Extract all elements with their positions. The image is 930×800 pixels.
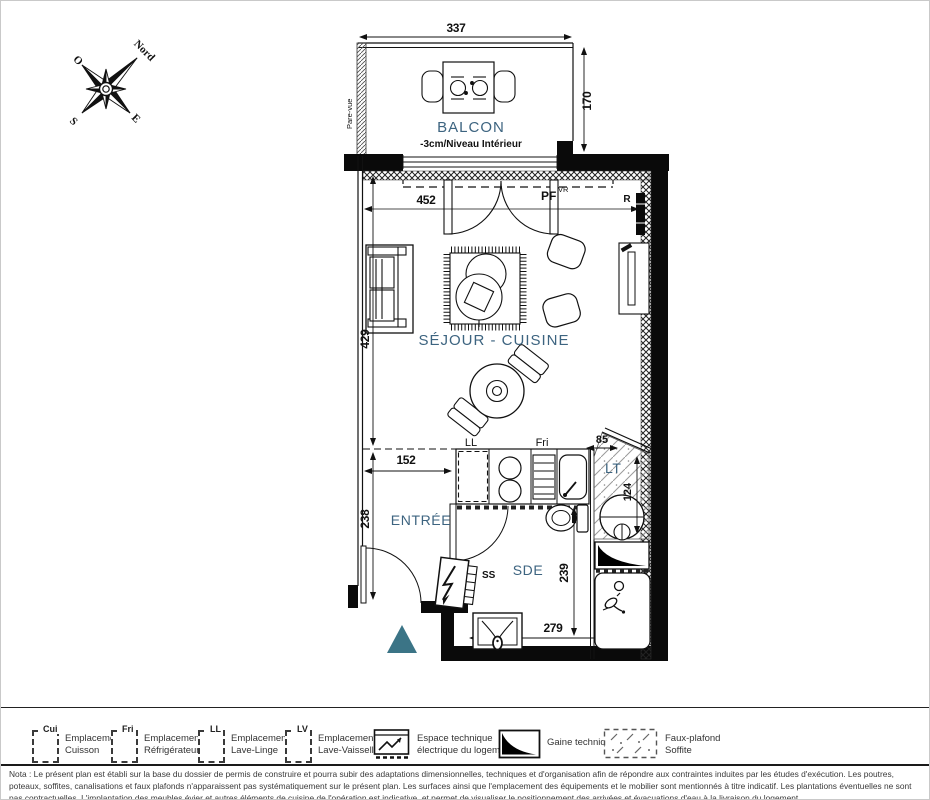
shower [595,571,650,649]
dim-239: 239 [557,563,571,583]
sejour-cuisine-label: SÉJOUR - CUISINE [418,332,569,349]
cooktop-burner [499,457,521,479]
wall-hatch-top [363,171,649,180]
legend-label-line1: Faux-plafond [665,733,720,745]
porte-fenetre: PF VR [403,180,613,234]
floor-plan-page: Nord O S E Pare-vue BALCON -3cm/Niveau I… [0,0,930,800]
entrance-marker-triangle [387,625,417,653]
electric-space-icon [373,727,411,761]
legend-label-line1: Emplacement [318,733,379,745]
kitchen-sink [560,455,587,499]
pf-label: PF [541,189,556,203]
sde-door [450,504,508,561]
electrical-panel [435,557,478,609]
balcony: Pare-vue BALCON -3cm/Niveau Intérieur 33… [345,21,594,155]
dim-429: 429 [358,329,372,349]
dim-152: 152 [396,453,416,467]
legend-dashed-box-icon: LL [198,730,225,763]
legend-tag: LL [208,724,223,734]
legend-dashed-box-icon: Fri [111,730,138,763]
dim-337: 337 [446,21,466,35]
faux-plafond-icon [603,728,658,760]
legend-label-line1: Emplacement [231,733,289,745]
legend-label-line1: Emplacement [144,733,202,745]
dim-238: 238 [358,509,372,529]
gaine-technique [595,542,649,569]
dim-452: 452 [416,193,436,207]
dim-279: 279 [543,621,563,635]
legend-label-line2: Lave-Linge [231,745,289,757]
dining-table [447,343,550,437]
vr-label: VR [558,185,569,194]
legend-label-line2: Réfrigérateur [144,745,202,757]
balcony-label: BALCON [437,119,505,136]
dim-124: 124 [622,482,634,501]
legend-tag: Fri [120,724,136,734]
pare-vue-label: Pare-vue [345,99,354,129]
shower-drain [615,582,624,591]
radiator: R [623,193,647,235]
legend-dashed-box-icon: Cui [32,730,59,763]
dim-85: 85 [596,434,608,446]
washer-slot [459,452,488,502]
toilet [546,505,588,532]
legend-label-line2: Lave-Vaisselle [318,745,379,757]
floor-plan-drawing: Nord O S E Pare-vue BALCON -3cm/Niveau I… [1,1,929,707]
legend-tag: LV [295,724,310,734]
legend-label-line2: Soffite [665,745,720,757]
washbasin [473,613,522,650]
pare-vue-screen [357,43,366,155]
compass-east-label: E [129,112,143,126]
cooktop-burner [499,480,521,502]
fridge-slot [533,455,555,499]
fridge-tag: Fri [536,437,549,449]
balcony-level-note: -3cm/Niveau Intérieur [420,139,522,150]
rug [447,250,524,328]
dim-170: 170 [580,91,594,111]
legend-tag: Cui [41,724,60,734]
pouf-bottom [541,292,583,330]
window-sill [403,155,557,169]
balcony-table-and-chairs [422,62,515,113]
legend-strip: Cui Emplacement Cuisson Fri Emplacement … [1,707,929,765]
ss-label: SS [482,570,496,581]
gaine-technique-icon [498,729,541,759]
kitchen-counter: LL Fri [363,437,589,508]
sde-label: SDE [513,562,544,578]
pouf-top [545,232,588,271]
lt-label: LT [605,460,622,476]
entrance-door [361,546,421,603]
lt-room: LT 85 124 [587,428,652,540]
desk [619,243,649,314]
radiator-label: R [623,194,631,205]
nota-text: Nota : Le présent plan est établi sur la… [1,764,929,799]
legend-dashed-box-icon: LV [285,730,312,763]
sde-partition-wall [591,449,595,659]
compass-rose-icon: Nord O S E [38,15,181,158]
entree-label: ENTRÉE [391,512,451,528]
compass-south-label: S [67,115,80,128]
washer-tag: LL [465,437,477,449]
